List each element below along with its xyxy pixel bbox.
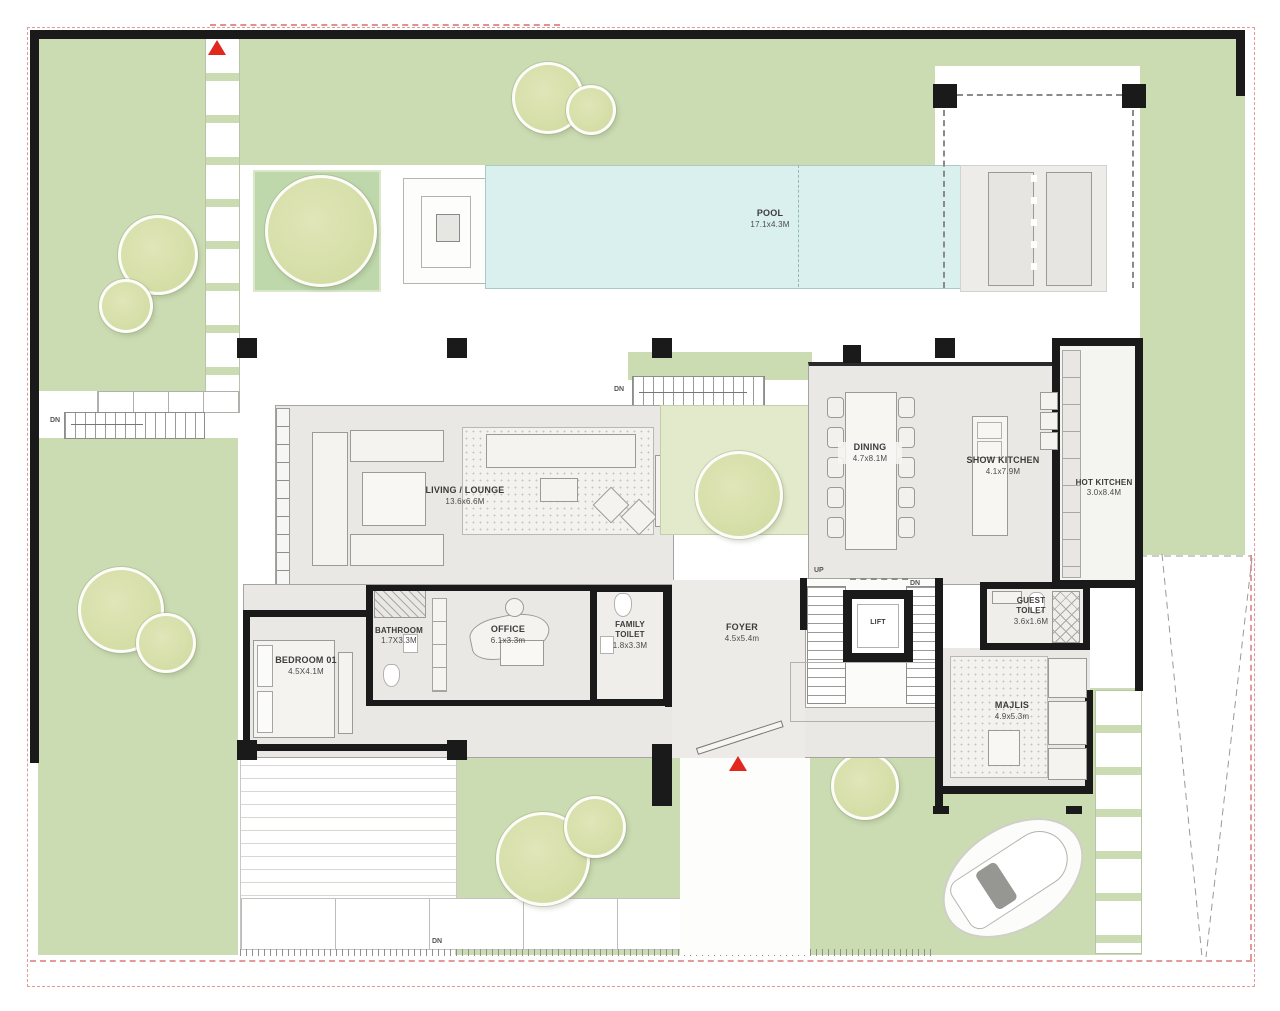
tile-row-left <box>97 391 240 413</box>
room-label-majlis: MAJLIS 4.9x5.3m <box>972 700 1052 722</box>
toilet <box>614 593 632 617</box>
room-label-dining: DINING 4.7x8.1M <box>838 442 902 464</box>
room-label-pool: POOL 17.1x4.3M <box>725 208 815 230</box>
paver-walkway-right <box>1095 690 1142 954</box>
bedroom-wall <box>243 610 370 617</box>
column <box>843 345 861 363</box>
majlis-table <box>988 730 1020 766</box>
sofa <box>312 432 348 566</box>
tile-strip-bottom <box>240 898 682 950</box>
dining-chair <box>898 517 915 538</box>
coffee-table <box>540 478 578 502</box>
exterior-wall <box>1135 585 1143 691</box>
water-feature-core <box>436 214 460 242</box>
dining-chair <box>898 397 915 418</box>
pergola-dashed-edge <box>1132 110 1134 288</box>
dining-chair <box>898 487 915 508</box>
column <box>447 338 467 358</box>
floor-plan-canvas: DN DN DN <box>0 0 1280 1011</box>
sun-lounger <box>988 172 1034 286</box>
stair-landing-outline <box>790 662 942 722</box>
pergola-dashed-beam <box>957 94 1122 96</box>
dining-chair <box>827 397 844 418</box>
column <box>237 338 257 358</box>
wall-appliance <box>1040 412 1058 430</box>
bedroom-wall <box>243 744 461 751</box>
room-label-show-kitchen: SHOW KITCHEN 4.1x7.9M <box>958 455 1048 477</box>
room-label-foyer: FOYER 4.5x5.4m <box>700 622 784 644</box>
shower-hatch <box>374 590 426 618</box>
dining-chair <box>827 517 844 538</box>
dining-table <box>845 392 897 550</box>
tree <box>564 796 626 858</box>
majlis-sofa <box>1048 748 1087 780</box>
boundary-red-dashes-bottom <box>30 960 1252 962</box>
column <box>237 740 257 760</box>
lawn-left-top <box>38 38 206 391</box>
tree <box>265 175 377 287</box>
tree <box>831 752 899 820</box>
lift-dashed-line <box>850 578 908 580</box>
majlis-sofa <box>1048 701 1087 745</box>
pergola-column <box>1122 84 1146 108</box>
room-label-guest-toilet: GUEST TOILET 3.6x1.6M <box>1008 596 1054 627</box>
room-label-lift: LIFT <box>843 618 913 627</box>
room-label-bedroom01: BEDROOM 01 4.5X4.1M <box>258 655 354 677</box>
tree <box>136 613 196 673</box>
toilet <box>383 664 400 687</box>
boundary-wall-right-stub <box>1236 30 1245 96</box>
guest-shower-hatch <box>1052 591 1080 643</box>
pergola-dashed-edge <box>943 110 945 288</box>
lounger-dots <box>1031 175 1037 283</box>
wall-appliance <box>1040 392 1058 410</box>
car <box>936 812 1088 942</box>
tree <box>99 279 153 333</box>
island-appliance <box>977 422 1002 439</box>
paver-walkway-left <box>205 38 240 393</box>
entry-path <box>680 758 810 955</box>
room-label-bathroom: BATHROOM 1.7X3.3M <box>360 626 438 647</box>
living-window-mullions <box>276 408 290 598</box>
tree <box>566 85 616 135</box>
foyer-wall-left <box>665 585 672 707</box>
foyer-wall-left-lower <box>652 744 672 806</box>
sofa <box>350 534 444 566</box>
room-label-family-toilet: FAMILY TOILET 1.8x3.3M <box>604 620 656 651</box>
column <box>935 338 955 358</box>
entrance-arrow-icon <box>729 756 747 771</box>
boundary-wall-left <box>30 30 39 763</box>
lawn-right-strip <box>1140 38 1245 555</box>
boundary-wall-top <box>30 30 1245 39</box>
sun-lounger <box>1046 172 1092 286</box>
foyer-area <box>672 580 805 758</box>
stairs-up-label: UP <box>814 567 824 574</box>
column <box>447 740 467 760</box>
tree <box>695 451 783 539</box>
pillow <box>257 691 273 733</box>
room-label-living: LIVING / LOUNGE 13.6x6.6M <box>405 485 525 507</box>
dining-chair <box>827 487 844 508</box>
majlis-wall-bottom <box>935 786 1093 794</box>
sofa <box>486 434 636 468</box>
stair-direction-line <box>71 424 143 425</box>
pool-area <box>485 165 962 289</box>
pergola-column <box>933 84 957 108</box>
office-chair <box>505 598 524 617</box>
road <box>1140 552 1255 957</box>
stair-wall <box>800 578 807 630</box>
deck-boards-terrace <box>240 752 457 900</box>
fence-ticks-bottom <box>240 949 935 956</box>
stairs-top-dn-label: DN <box>614 386 624 393</box>
column <box>652 338 672 358</box>
stair-direction-line <box>639 392 747 393</box>
stairs-bottom-dn-label: DN <box>432 938 442 945</box>
stairs-left-dn-label: DN <box>50 417 60 424</box>
sofa <box>350 430 444 462</box>
stairs-left-garden <box>64 412 205 439</box>
room-label-office: OFFICE 6.1x3.3m <box>468 624 548 646</box>
majlis-wall-left <box>935 578 943 806</box>
stairs-dn-label: DN <box>910 580 920 587</box>
wall-appliance <box>1040 432 1058 450</box>
car-windshield <box>974 861 1018 911</box>
room-label-hot-kitchen: HOT KITCHEN 3.0x8.4M <box>1070 478 1138 499</box>
north-arrow-icon <box>208 40 226 55</box>
majlis-sofa <box>1048 658 1087 698</box>
hot-kitchen-counter <box>1062 350 1081 578</box>
boundary-red-dashes-top <box>210 24 560 26</box>
bedroom-wall <box>243 610 250 752</box>
lawn-left-bottom <box>38 438 238 955</box>
